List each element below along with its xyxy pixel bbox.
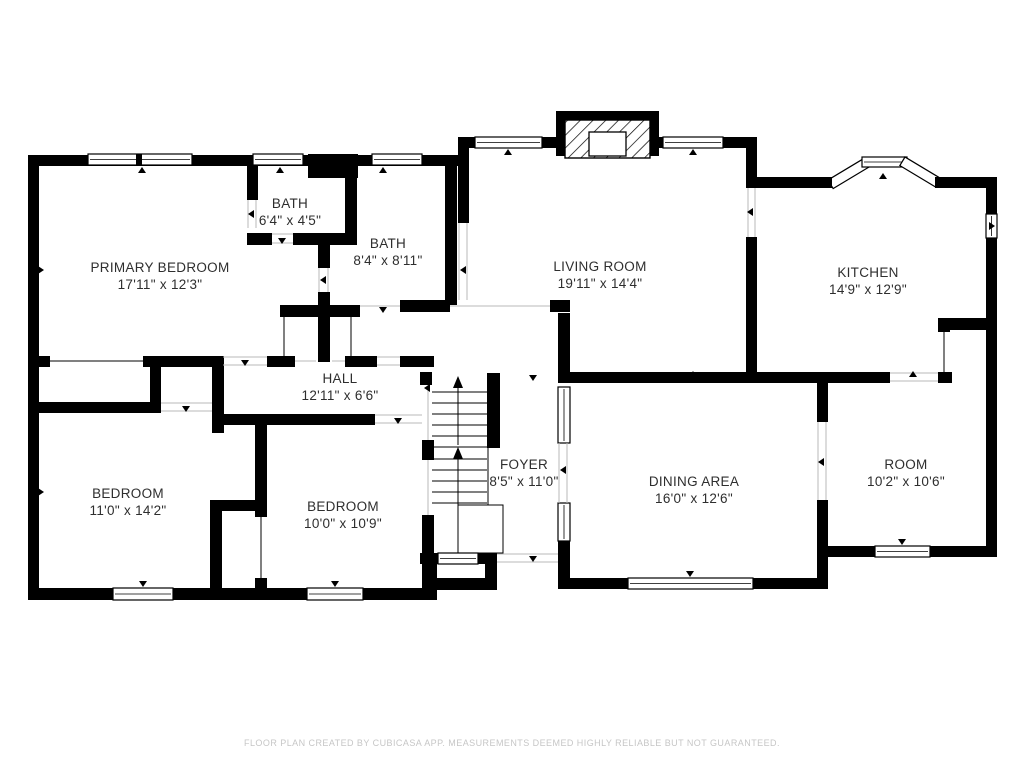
room-name: BATH	[353, 235, 422, 252]
room-dimensions: 12'11" x 6'6"	[302, 387, 379, 404]
room-label-kitchen: KITCHEN 14'9" x 12'9"	[829, 264, 907, 298]
room-dimensions: 8'4" x 8'11"	[353, 252, 422, 269]
room-name: ROOM	[867, 456, 945, 473]
room-label-hall: HALL 12'11" x 6'6"	[302, 370, 379, 404]
bay-window	[822, 157, 945, 189]
stairs-up-arrow	[453, 376, 463, 445]
fireplace	[556, 111, 659, 158]
room-label-room: ROOM 10'2" x 10'6"	[867, 456, 945, 490]
room-dimensions: 14'9" x 12'9"	[829, 281, 907, 298]
room-name: BATH	[259, 195, 321, 212]
room-name: FOYER	[489, 456, 558, 473]
room-label-primary-bedroom: PRIMARY BEDROOM 17'11" x 12'3"	[90, 259, 229, 293]
room-name: BEDROOM	[90, 485, 167, 502]
room-name: PRIMARY BEDROOM	[90, 259, 229, 276]
direction-markers	[38, 149, 995, 587]
room-name: LIVING ROOM	[553, 258, 646, 275]
room-dimensions: 19'11" x 14'4"	[553, 275, 646, 292]
room-name: KITCHEN	[829, 264, 907, 281]
room-dimensions: 10'2" x 10'6"	[867, 473, 945, 490]
windows	[88, 137, 997, 600]
room-dimensions: 16'0" x 12'6"	[649, 490, 739, 507]
room-label-bedroom-1: BEDROOM 11'0" x 14'2"	[90, 485, 167, 519]
walls	[28, 137, 997, 600]
room-label-foyer: FOYER 8'5" x 11'0"	[489, 456, 558, 490]
room-label-dining-area: DINING AREA 16'0" x 12'6"	[649, 473, 739, 507]
floor-plan-page: PRIMARY BEDROOM 17'11" x 12'3" BATH 6'4"…	[0, 0, 1024, 768]
room-dimensions: 8'5" x 11'0"	[489, 473, 558, 490]
room-name: BEDROOM	[304, 498, 382, 515]
room-name: DINING AREA	[649, 473, 739, 490]
footer-disclaimer: FLOOR PLAN CREATED BY CUBICASA APP. MEAS…	[0, 738, 1024, 748]
room-label-bath-small: BATH 6'4" x 4'5"	[259, 195, 321, 229]
room-label-bedroom-2: BEDROOM 10'0" x 10'9"	[304, 498, 382, 532]
room-dimensions: 6'4" x 4'5"	[259, 212, 321, 229]
stairs-up-arrow	[453, 447, 463, 505]
room-label-living-room: LIVING ROOM 19'11" x 14'4"	[553, 258, 646, 292]
room-dimensions: 17'11" x 12'3"	[90, 276, 229, 293]
room-dimensions: 10'0" x 10'9"	[304, 515, 382, 532]
room-dimensions: 11'0" x 14'2"	[90, 502, 167, 519]
room-name: HALL	[302, 370, 379, 387]
room-label-bath-large: BATH 8'4" x 8'11"	[353, 235, 422, 269]
floor-plan-drawing	[0, 0, 1024, 768]
